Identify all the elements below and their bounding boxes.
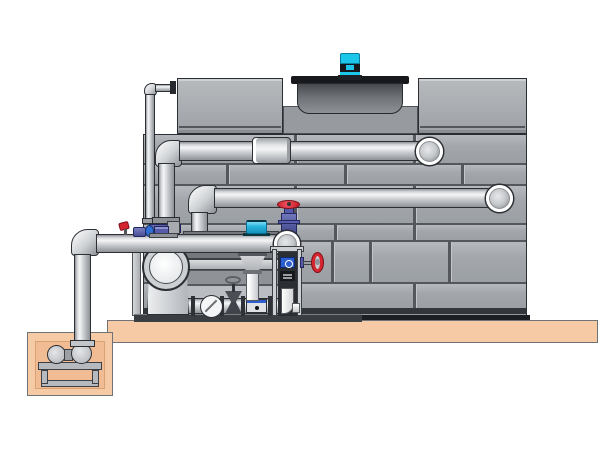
fitting-port [255,306,259,310]
sump-base-bar [41,380,99,387]
sump-platform-leg [41,370,48,384]
upper-pipe-riser [158,163,175,219]
discharge-pipe-elbow [71,229,99,256]
diffuser-flange [243,270,262,274]
sump-platform [38,362,102,370]
cyan-actuator-valve [246,220,267,234]
main-discharge-pipe [96,234,278,253]
middle-pipe-inlet-elbow [486,185,513,212]
equalizer-standpipe [145,94,155,221]
middle-supply-pipe [214,188,491,208]
sump-platform-leg [92,370,99,384]
sump-riser-flange [70,340,95,347]
fan-motor-window [346,65,354,70]
globe-valve-flange [278,220,300,224]
middle-pipe-elbow [188,185,217,214]
control-label-box [280,271,295,281]
pump-suction-eye [149,250,183,284]
side-valve-hub [315,259,320,265]
upper-pipe-inlet-elbow [416,138,443,165]
check-valve [200,295,223,318]
cluster-base-plate [149,233,178,238]
diffuser-riser-pipe [246,273,259,301]
globe-valve-hub [287,202,291,206]
label-line [283,277,292,279]
upper-pipe-coupling [252,137,291,164]
logo-ring [285,260,293,268]
gate-valve-handwheel [225,276,241,284]
blue-logo-box [280,257,295,268]
cooling-tower-diagram [0,0,600,450]
panel-row [144,165,527,184]
standpipe-cap [170,81,176,94]
top-box-seam [179,126,281,128]
check-valve-lever [205,300,218,313]
fan-motor-top [340,53,360,64]
pipe-flange [191,296,195,316]
fan-shroud [297,83,403,114]
purple-inline-fitting [133,227,146,237]
riser-base-fitting [246,299,267,313]
ball-valve-stem [124,229,127,235]
top-box-seam [420,126,525,128]
gate-valve-stem [232,283,235,292]
stand-post-left [272,249,277,316]
stand-drain-stub [292,303,300,313]
concrete-slab [107,320,598,343]
label-line [283,274,292,276]
fan-motor-base [338,75,362,80]
pipe-flange [241,296,245,316]
sump-riser-pipe [74,254,91,346]
skid-base-rail [134,314,362,322]
upper-return-pipe [179,141,422,161]
